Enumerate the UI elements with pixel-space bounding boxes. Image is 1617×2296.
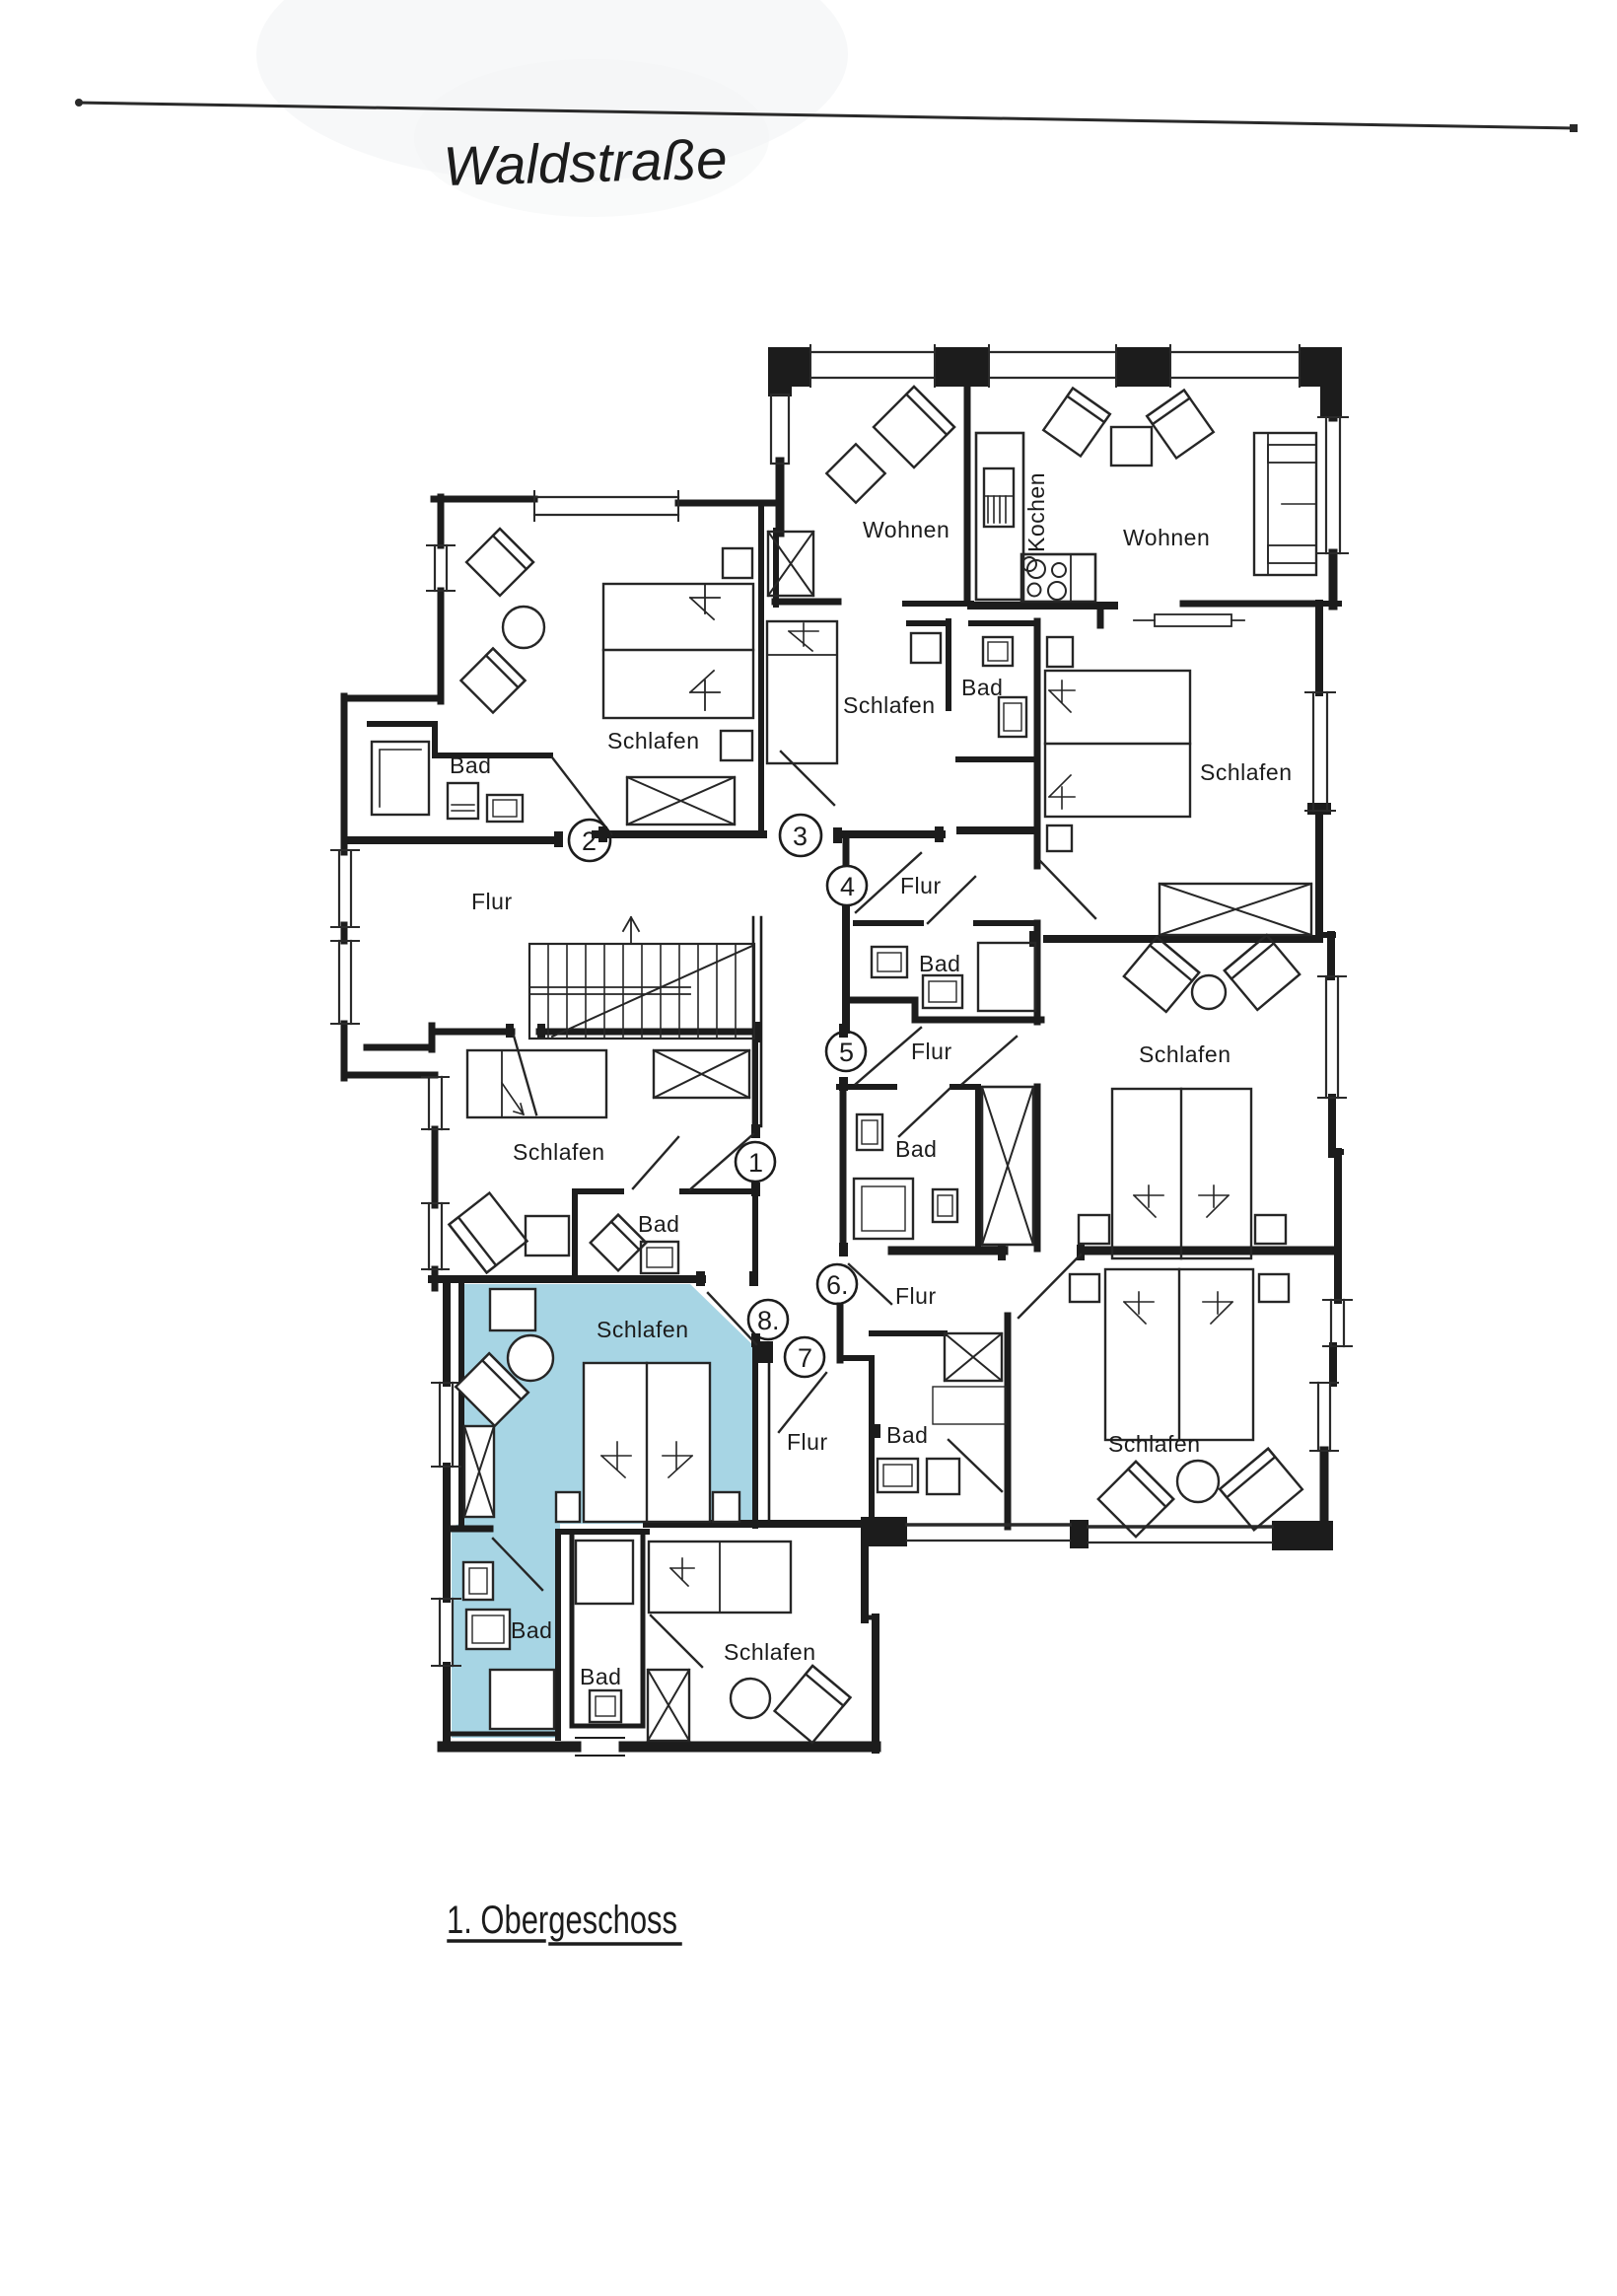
svg-text:Schlafen: Schlafen (1200, 759, 1293, 785)
svg-text:1: 1 (748, 1148, 763, 1178)
svg-text:Flur: Flur (911, 1039, 952, 1064)
svg-text:Bad: Bad (895, 1136, 937, 1162)
svg-text:7: 7 (798, 1343, 812, 1373)
svg-text:8.: 8. (757, 1306, 780, 1335)
svg-text:Schlafen: Schlafen (1139, 1041, 1231, 1067)
svg-text:Bad: Bad (450, 753, 491, 778)
svg-text:Bad: Bad (961, 675, 1003, 700)
svg-text:Flur: Flur (895, 1283, 937, 1309)
svg-text:Flur: Flur (471, 889, 513, 914)
svg-text:Schlafen: Schlafen (724, 1639, 816, 1665)
svg-text:Bad: Bad (580, 1664, 621, 1689)
svg-text:Bad: Bad (638, 1211, 679, 1237)
svg-text:Schlafen: Schlafen (513, 1139, 605, 1165)
svg-text:Bad: Bad (886, 1422, 928, 1448)
svg-text:Bad: Bad (919, 951, 960, 976)
svg-text:Wohnen: Wohnen (863, 517, 949, 542)
svg-text:Flur: Flur (900, 873, 942, 898)
svg-text:Schlafen: Schlafen (1108, 1431, 1201, 1457)
svg-text:1. Obergeschoss: 1. Obergeschoss (447, 1899, 677, 1942)
svg-text:3: 3 (793, 822, 808, 851)
svg-text:Schlafen: Schlafen (597, 1317, 689, 1342)
svg-text:Waldstraße: Waldstraße (443, 127, 729, 197)
svg-text:Wohnen: Wohnen (1123, 525, 1210, 550)
svg-text:5: 5 (839, 1038, 854, 1067)
svg-text:2: 2 (582, 826, 597, 856)
svg-text:4: 4 (840, 872, 855, 901)
svg-text:Bad: Bad (511, 1617, 552, 1643)
svg-text:Schlafen: Schlafen (843, 692, 936, 718)
svg-text:Kochen: Kochen (1023, 472, 1049, 552)
svg-text:6.: 6. (826, 1270, 849, 1300)
svg-text:Schlafen: Schlafen (607, 728, 700, 753)
svg-text:Flur: Flur (787, 1429, 828, 1455)
